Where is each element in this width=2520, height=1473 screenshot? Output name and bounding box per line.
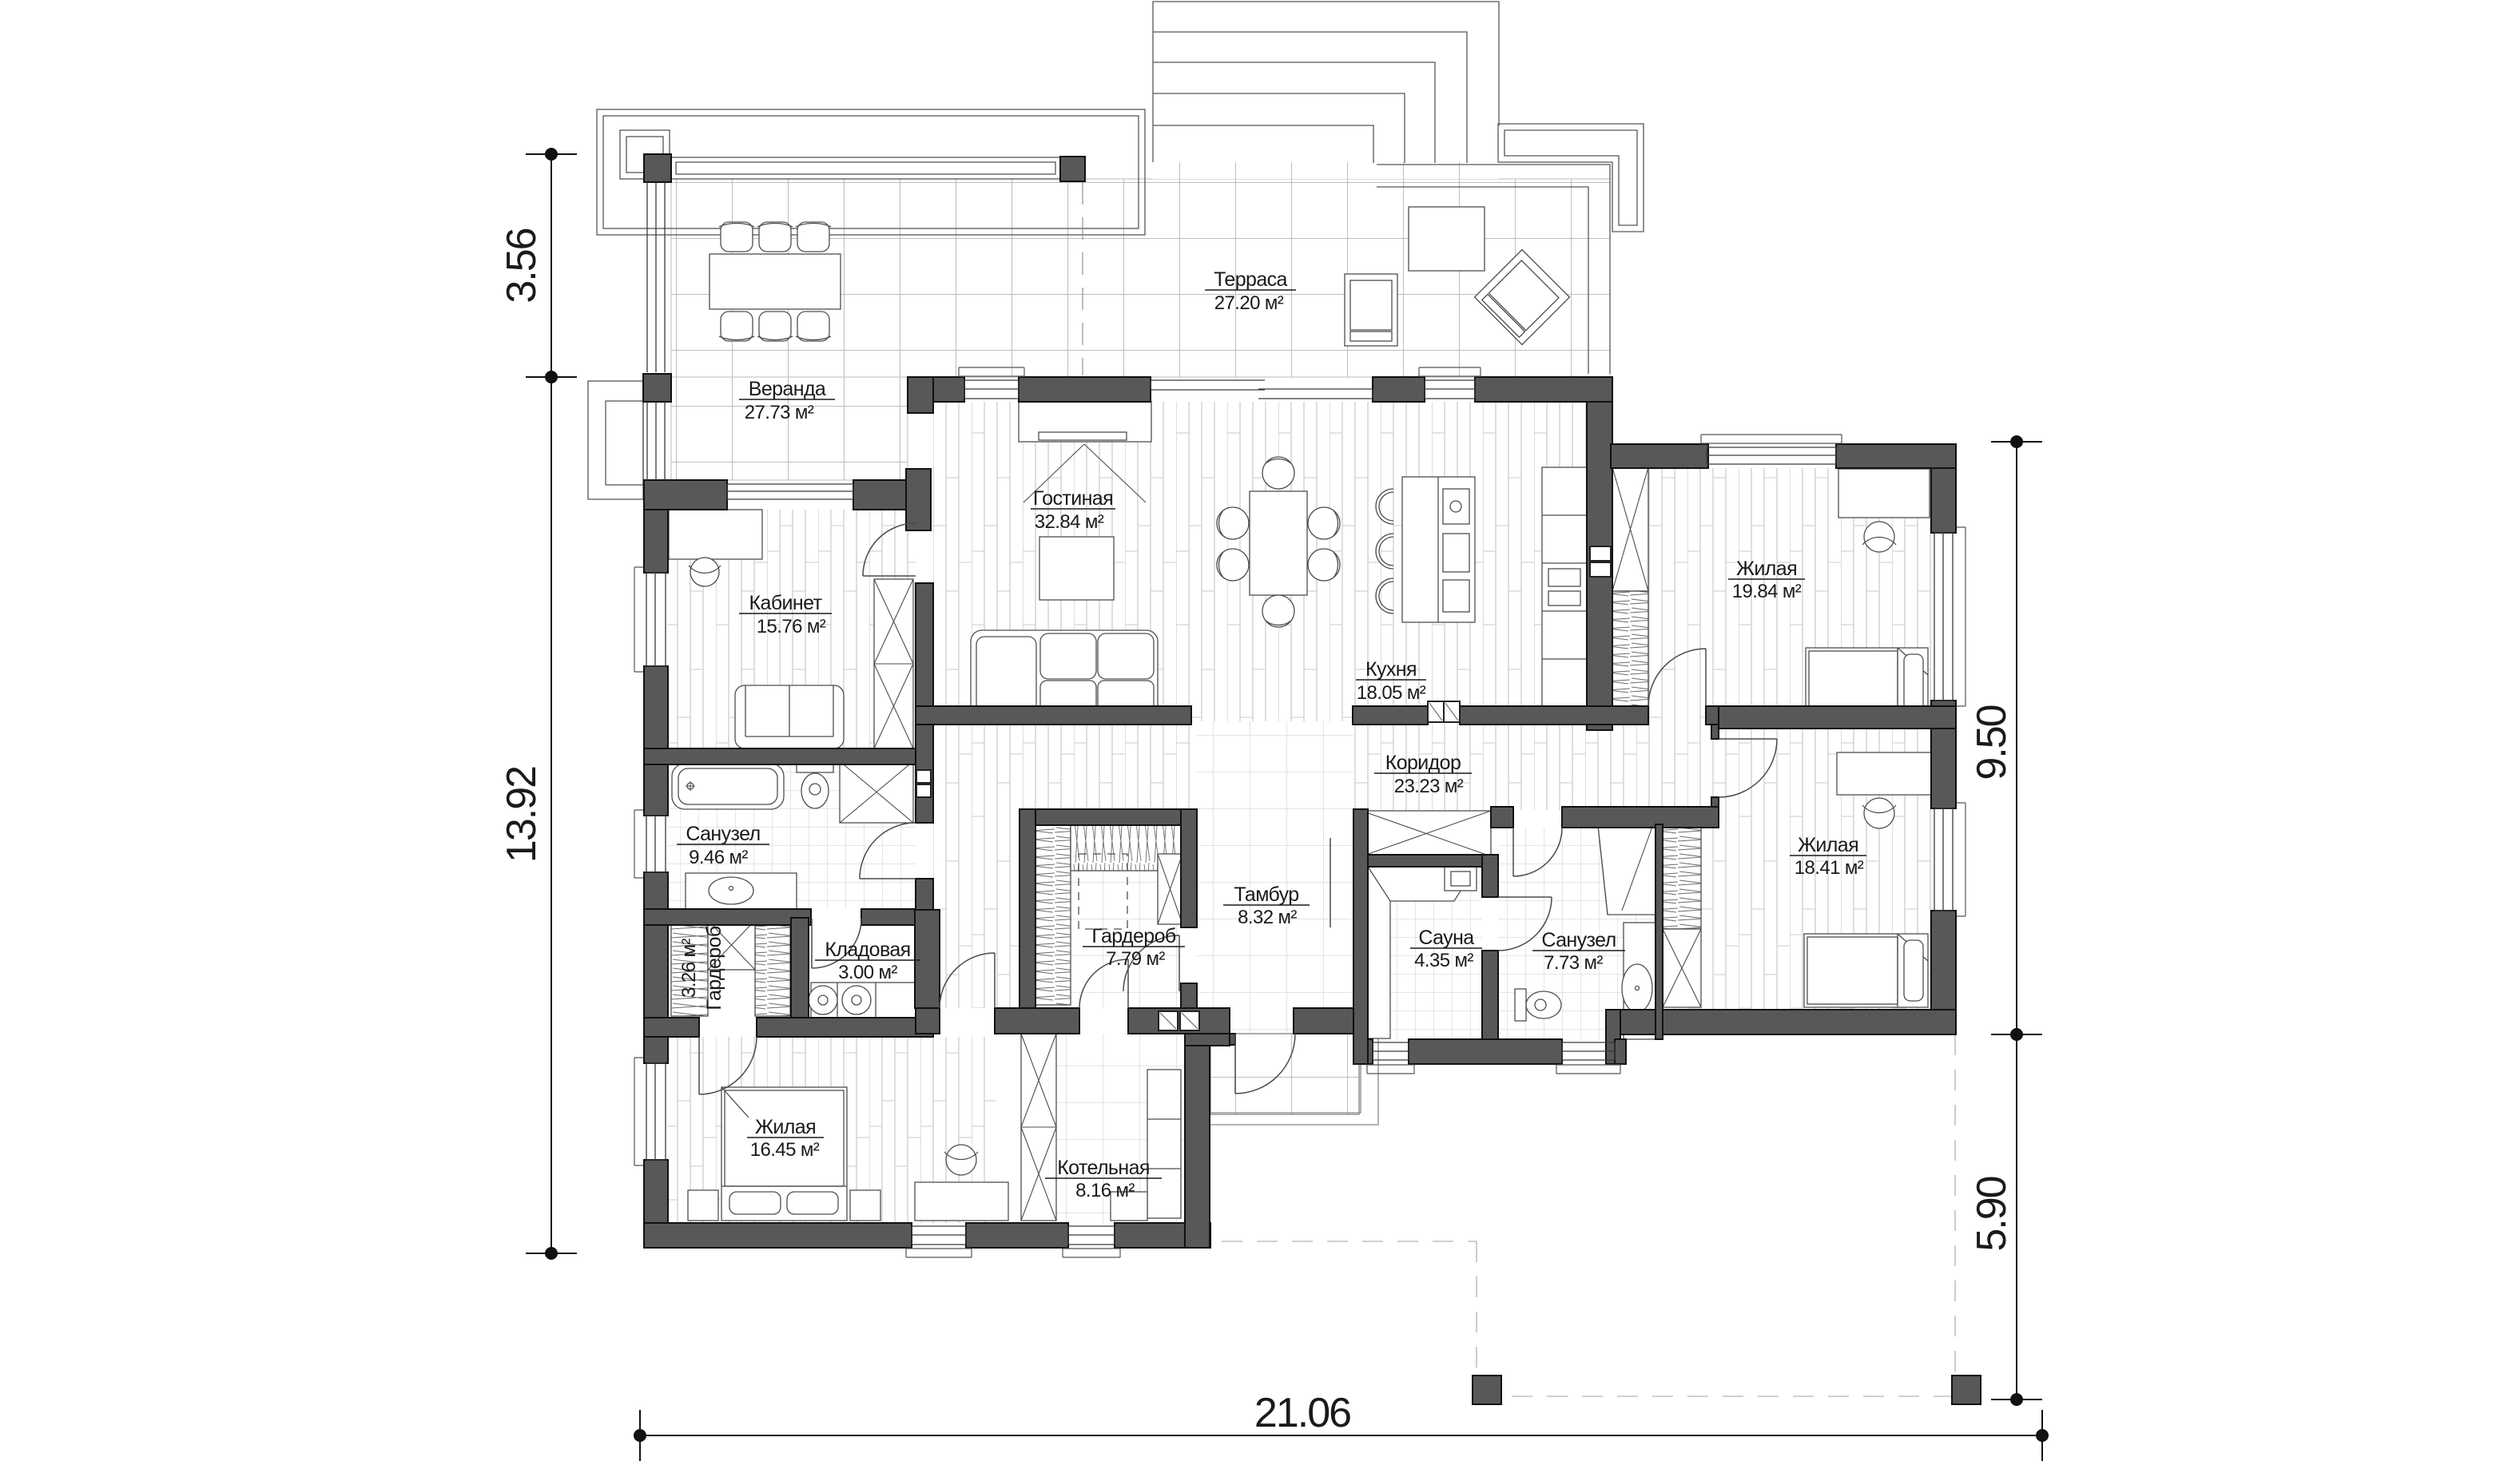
- svg-text:Санузел: Санузел: [686, 823, 760, 845]
- svg-text:7.79 м²: 7.79 м²: [1106, 948, 1165, 970]
- svg-text:Веранда: Веранда: [749, 378, 826, 400]
- svg-text:Терраса: Терраса: [1214, 268, 1287, 291]
- svg-text:9.50: 9.50: [1969, 705, 2015, 780]
- svg-text:19.84 м²: 19.84 м²: [1732, 581, 1802, 602]
- svg-text:16.45 м²: 16.45 м²: [750, 1139, 820, 1161]
- svg-text:3.00 м²: 3.00 м²: [838, 962, 897, 983]
- svg-text:5.90: 5.90: [1969, 1177, 2015, 1251]
- svg-text:27.20 м²: 27.20 м²: [1214, 292, 1284, 314]
- svg-text:Кухня: Кухня: [1365, 658, 1417, 681]
- svg-text:Коридор: Коридор: [1385, 752, 1461, 774]
- svg-text:9.46 м²: 9.46 м²: [689, 847, 748, 868]
- svg-text:7.73 м²: 7.73 м²: [1544, 952, 1603, 974]
- svg-text:18.05 м²: 18.05 м²: [1357, 682, 1426, 704]
- svg-text:4.35 м²: 4.35 м²: [1414, 950, 1473, 971]
- svg-text:15.76 м²: 15.76 м²: [757, 616, 826, 637]
- svg-text:3.26 м²: 3.26 м²: [678, 939, 700, 998]
- svg-text:3.56: 3.56: [499, 228, 545, 303]
- svg-text:Жилая: Жилая: [1798, 834, 1858, 856]
- svg-text:32.84 м²: 32.84 м²: [1035, 511, 1104, 533]
- svg-text:23.23 м²: 23.23 м²: [1394, 776, 1464, 797]
- svg-text:Тамбур: Тамбур: [1234, 883, 1298, 906]
- svg-text:Жилая: Жилая: [755, 1116, 816, 1138]
- svg-text:Котельная: Котельная: [1057, 1157, 1150, 1179]
- svg-text:Кабинет: Кабинет: [749, 592, 823, 614]
- svg-text:Гардероб: Гардероб: [1091, 925, 1175, 947]
- svg-text:Гардероб: Гардероб: [703, 926, 725, 1010]
- svg-text:Санузел: Санузел: [1541, 929, 1616, 951]
- svg-text:Жилая: Жилая: [1736, 558, 1797, 580]
- svg-text:18.41 м²: 18.41 м²: [1795, 857, 1864, 879]
- svg-text:Гостиная: Гостиная: [1033, 487, 1113, 510]
- svg-text:8.16 м²: 8.16 м²: [1075, 1180, 1135, 1201]
- svg-text:21.06: 21.06: [1254, 1390, 1350, 1436]
- svg-text:Сауна: Сауна: [1418, 927, 1474, 949]
- svg-text:13.92: 13.92: [499, 767, 545, 863]
- svg-text:8.32 м²: 8.32 м²: [1238, 907, 1297, 928]
- svg-text:Кладовая: Кладовая: [825, 939, 910, 961]
- svg-text:27.73 м²: 27.73 м²: [745, 402, 814, 423]
